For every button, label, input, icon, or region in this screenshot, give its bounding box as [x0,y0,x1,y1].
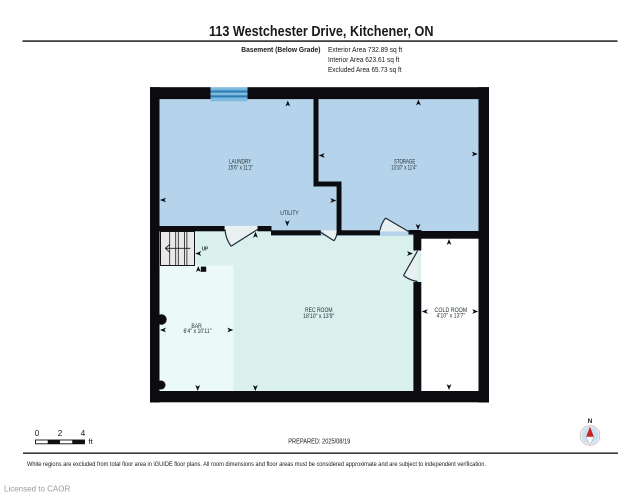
svg-text:UTILITY: UTILITY [280,211,299,217]
svg-text:18'10" x 13'9": 18'10" x 13'9" [303,314,334,320]
svg-text:13'10" x 11'4": 13'10" x 11'4" [391,165,417,171]
svg-text:LAUNDRY: LAUNDRY [229,159,251,165]
svg-text:Basement (Below Grade): Basement (Below Grade) [241,45,321,54]
svg-text:0: 0 [35,429,40,438]
svg-text:STORAGE: STORAGE [394,159,415,165]
svg-text:UP: UP [202,246,208,252]
svg-text:Excluded Area 65.73 sq ft: Excluded Area 65.73 sq ft [328,65,402,74]
svg-text:4'10" x 13'7": 4'10" x 13'7" [436,314,465,320]
svg-text:Interior Area 623.61 sq ft: Interior Area 623.61 sq ft [328,55,400,64]
svg-text:6'4" x 10'11": 6'4" x 10'11" [183,329,211,335]
svg-text:Licensed to CAOR: Licensed to CAOR [4,485,70,494]
svg-text:White regions are excluded fro: White regions are excluded from total fl… [27,461,486,468]
svg-text:PREPARED: 2025/08/19: PREPARED: 2025/08/19 [288,436,350,445]
svg-text:113 Westchester Drive, Kitchen: 113 Westchester Drive, Kitchener, ON [209,24,434,40]
svg-text:2: 2 [58,429,63,438]
svg-text:Exterior Area 732.89 sq ft: Exterior Area 732.89 sq ft [328,45,403,54]
svg-text:4: 4 [81,429,86,438]
svg-text:N: N [588,418,593,425]
svg-text:15'6" x 11'2": 15'6" x 11'2" [228,165,253,171]
